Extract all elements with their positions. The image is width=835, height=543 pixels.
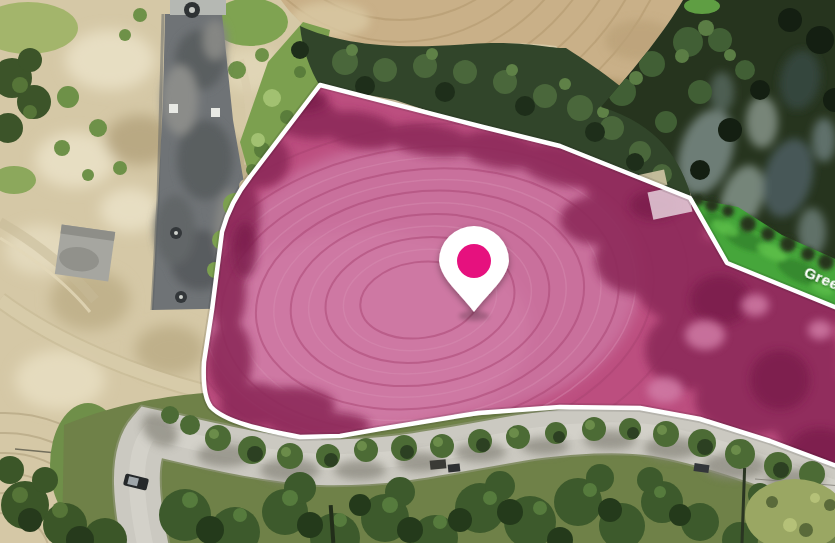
- aerial-photo-canvas: Green Area: [0, 0, 835, 543]
- manhole: [169, 104, 178, 113]
- vehicle: [430, 459, 447, 470]
- pin-dot: [457, 244, 491, 278]
- aerial-map-view: Green Area: [0, 0, 835, 543]
- concrete-slab: [55, 224, 115, 281]
- manhole: [211, 108, 220, 117]
